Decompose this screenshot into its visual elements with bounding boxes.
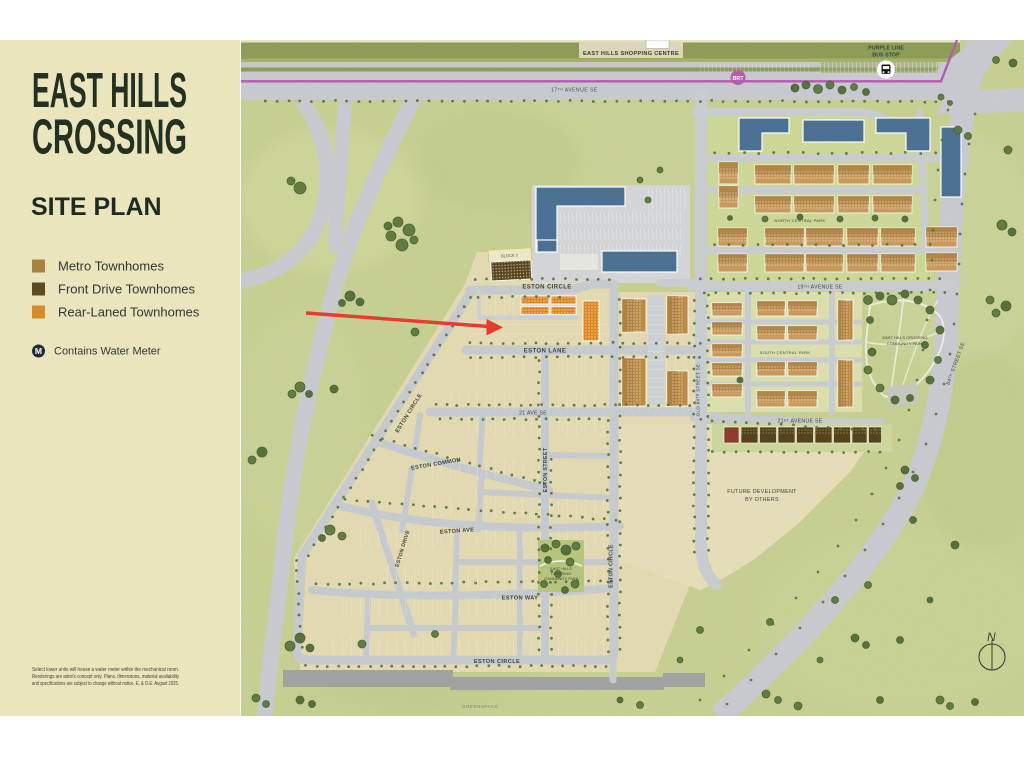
svg-text:EAST HILLS CROSSING: EAST HILLS CROSSING <box>882 335 927 340</box>
svg-text:21 AVE SE: 21 AVE SE <box>519 411 547 417</box>
svg-text:CROSSING: CROSSING <box>32 109 187 164</box>
svg-text:PURPLE LINE: PURPLE LINE <box>868 46 904 52</box>
svg-text:ESTON STREET: ESTON STREET <box>543 447 549 492</box>
svg-text:Front Drive Townhomes: Front Drive Townhomes <box>58 282 196 297</box>
svg-text:ESTON CIRCLE: ESTON CIRCLE <box>609 544 615 588</box>
svg-text:Contains Water Meter: Contains Water Meter <box>54 346 161 358</box>
svg-text:BUS STOP: BUS STOP <box>872 53 900 59</box>
svg-text:EAST HILLS: EAST HILLS <box>550 567 572 571</box>
svg-text:and specifications are subject: and specifications are subject to change… <box>32 681 179 687</box>
svg-text:M: M <box>35 346 42 356</box>
svg-text:COMMUNITY PARK: COMMUNITY PARK <box>887 341 924 346</box>
svg-text:Metro Townhomes: Metro Townhomes <box>58 259 164 274</box>
svg-text:ESTON CIRCLE: ESTON CIRCLE <box>474 659 520 665</box>
svg-text:Renderings are artist’s concep: Renderings are artist’s concept only. Pl… <box>32 674 179 680</box>
svg-text:Rear-Laned Townhomes: Rear-Laned Townhomes <box>58 305 200 320</box>
svg-text:ESTON WAY: ESTON WAY <box>502 596 539 602</box>
svg-text:NORTH CENTRAL PARK: NORTH CENTRAL PARK <box>775 218 826 223</box>
svg-text:SOUTH CENTRAL PARK: SOUTH CENTRAL PARK <box>760 350 811 355</box>
svg-text:CROSSING: CROSSING <box>551 572 571 576</box>
svg-text:COMMUNITY PARK: COMMUNITY PARK <box>544 577 579 581</box>
svg-text:Select lower units will house: Select lower units will house a water me… <box>32 667 179 673</box>
svg-text:OLD 84TH STREET SE: OLD 84TH STREET SE <box>695 364 700 417</box>
svg-text:ESTON CIRCLE: ESTON CIRCLE <box>522 285 571 291</box>
svg-text:N: N <box>987 630 996 644</box>
svg-text:BY OTHERS: BY OTHERS <box>745 497 779 503</box>
svg-text:FUTURE DEVELOPMENT: FUTURE DEVELOPMENT <box>727 489 797 495</box>
svg-text:SITE PLAN: SITE PLAN <box>31 193 162 221</box>
svg-text:ESTON LANE: ESTON LANE <box>524 349 567 355</box>
